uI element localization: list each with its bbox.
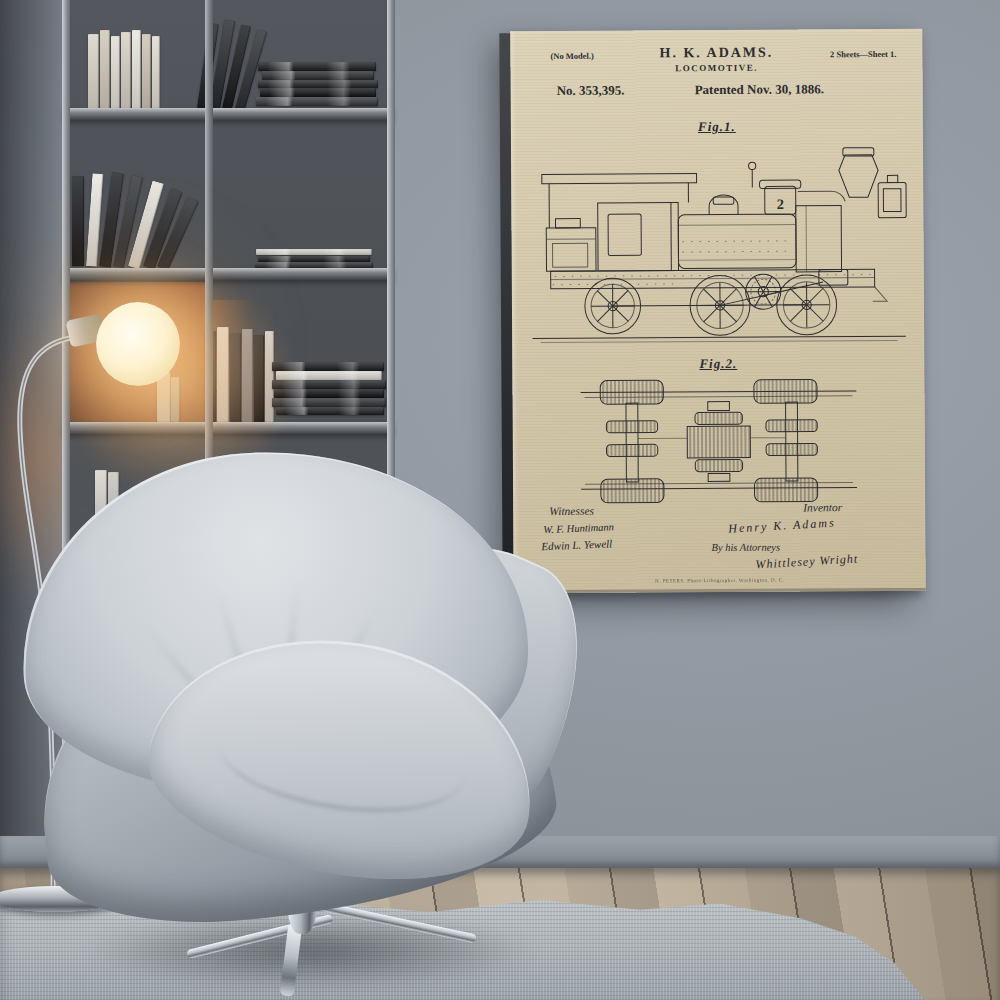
living-room-photo: (No Model.) H. K. ADAMS. LOCOMOTIVE. 2 S… xyxy=(0,0,1000,1000)
inventor-heading: Inventor xyxy=(803,501,842,513)
witnesses-heading: Witnesses xyxy=(549,505,594,517)
figure2-gear-drawing xyxy=(570,375,867,510)
shelf-board xyxy=(64,108,393,120)
sheets-note: 2 Sheets—Sheet 1. xyxy=(830,49,896,59)
witness-signature-2: Edwin L. Yewell xyxy=(541,537,612,552)
figure1-label: Fig.1. xyxy=(511,118,923,137)
attorney-signature: Whittlesey Wright xyxy=(755,551,858,572)
patent-poster-face: (No Model.) H. K. ADAMS. LOCOMOTIVE. 2 S… xyxy=(510,29,925,594)
attorney-prefix: By his Attorneys xyxy=(711,542,780,553)
figure2-label: Fig.2. xyxy=(512,355,924,374)
dome-numeral: 2 xyxy=(777,196,784,212)
witness-signature-1: W. F. Huntimann xyxy=(543,521,614,535)
patent-poster-canvas: (No Model.) H. K. ADAMS. LOCOMOTIVE. 2 S… xyxy=(510,29,925,594)
figure1-locomotive-drawing: 2 xyxy=(521,137,914,351)
patent-date: Patented Nov. 30, 1886. xyxy=(695,81,824,98)
seat-crease xyxy=(213,695,471,826)
invention-title: LOCOMOTIVE. xyxy=(510,62,922,75)
printer-credit: N. PETERS. Photo-Lithographer. Washingto… xyxy=(514,577,926,585)
lamp-bulb xyxy=(96,302,180,386)
inventor-signature: Henry K. Adams xyxy=(728,515,836,536)
patent-number: No. 353,395. xyxy=(557,83,625,99)
